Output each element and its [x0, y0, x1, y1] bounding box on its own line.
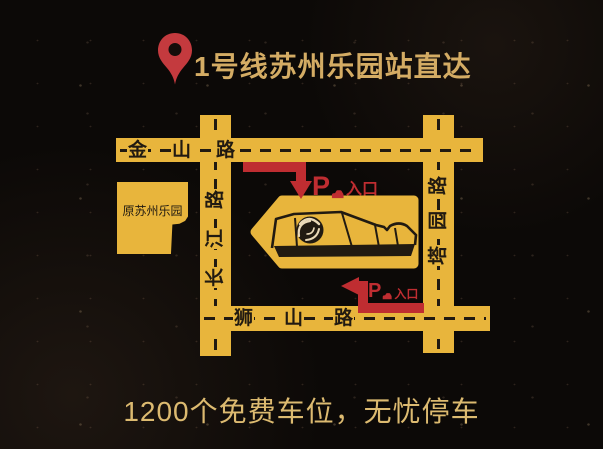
road-label-char: 长 [206, 267, 225, 288]
road-label-char: 路 [215, 141, 236, 160]
road-label-changjiang: 长江路 [206, 178, 225, 299]
road-label-char: 山 [283, 309, 304, 328]
map-pin-icon [157, 32, 193, 86]
entrance-south: P 入口 [368, 281, 418, 301]
road-label-char: 塔 [429, 245, 448, 266]
road-label-tayuan: 塔园路 [429, 169, 448, 272]
parking-symbol: P [368, 281, 381, 301]
landmark-label: 原苏州乐园 [120, 202, 185, 219]
entrance-label: 入口 [346, 182, 378, 198]
parking-symbol: P [312, 173, 330, 200]
road-label-char: 路 [333, 309, 354, 328]
road-label-char: 江 [206, 228, 225, 249]
road-label-char: 路 [429, 175, 448, 196]
landmark-former-park: 原苏州乐园 [117, 182, 188, 254]
poster: 1号线苏州乐园站直达 金山路 狮山路 长江路 塔园路 原苏州乐园 [0, 0, 603, 449]
road-label-char: 金 [127, 141, 148, 160]
car-icon [382, 292, 392, 300]
road-label-char: 狮 [233, 309, 254, 328]
parking-caption: 1200个免费车位，无忧停车 [0, 390, 603, 430]
car-icon [331, 189, 344, 199]
road-label-char: 园 [429, 210, 448, 231]
road-label-shishan: 狮山路 [233, 309, 354, 328]
road-label-jinshan: 金山路 [127, 141, 236, 160]
entrance-north: P 入口 [312, 173, 378, 200]
page-title: 1号线苏州乐园站直达 [194, 45, 472, 85]
building-base [274, 244, 415, 257]
entrance-label: 入口 [394, 288, 418, 300]
road-label-char: 山 [171, 141, 192, 160]
road-label-char: 路 [206, 189, 225, 210]
venue-badge [249, 190, 425, 276]
swirl-logo-icon [297, 217, 324, 244]
